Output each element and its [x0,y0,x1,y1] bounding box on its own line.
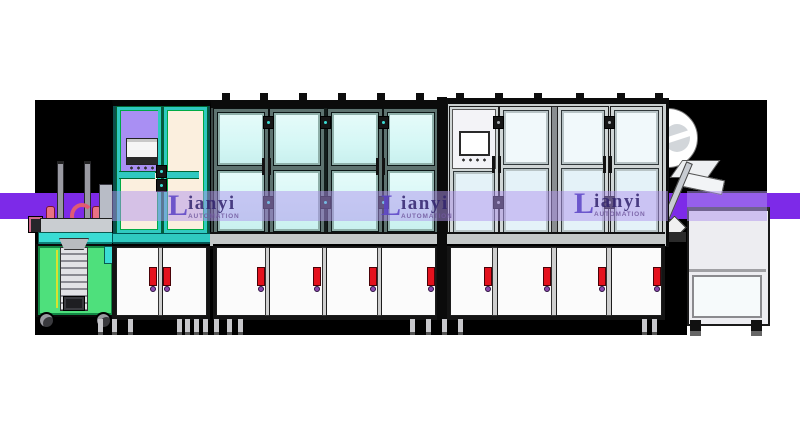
glass-window-upper [217,112,265,166]
logo-brand-text: ianyi [401,195,452,212]
hmi-screen [459,131,490,156]
elevator-motor [63,296,85,311]
door-handle-bar [498,156,501,173]
handle-screw [485,286,491,292]
logo-subtitle-text: AUTOMATION [401,213,452,220]
red-handle [484,267,492,286]
handle-screw [164,286,170,292]
side-cabinet-divider [689,269,766,272]
handle-screw [654,286,660,292]
handle-screw [428,286,434,292]
door-handle-bar [492,156,495,173]
red-handle [257,267,265,286]
red-handle [653,267,661,286]
leveling-foot [238,319,243,335]
door-handle-bar [609,156,612,173]
leveling-foot [458,319,463,335]
leveling-foot [410,319,415,335]
red-handle [163,267,171,286]
leveling-foot [128,319,133,335]
dispenser-bottom-rail [112,233,212,243]
dispenser-rail-left [119,171,155,179]
white-window-upper [561,110,605,165]
logo-subtitle-text: AUTOMATION [594,211,645,218]
red-handle [313,267,321,286]
side-cabinet-inset-panel [692,275,762,318]
red-handle [149,267,157,286]
leveling-foot [442,319,447,335]
door-handle-bar [382,158,385,175]
leveling-foot [214,319,219,335]
handle-screw [258,286,264,292]
leveling-foot [642,319,647,335]
caster-left [38,312,55,329]
red-handle [598,267,606,286]
red-handle [369,267,377,286]
glass-window-upper [331,112,379,166]
control-indicator-dots [460,158,488,162]
leveling-foot [112,319,117,335]
elevator-yellow-rail [56,250,58,308]
side-cabinet-foot-right [751,320,762,336]
leveling-foot [426,319,431,335]
glass-window-upper [273,112,321,166]
logo-text-column: ianyi AUTOMATION [188,195,239,220]
logo-brand-text: ianyi [594,193,645,210]
logo-brand-text: ianyi [188,195,239,212]
lianyi-logo: L ianyi AUTOMATION [381,194,452,220]
door-handle-bar [603,156,606,173]
door-handle-bar [262,158,265,175]
handle-screw [150,286,156,292]
leveling-foot [185,319,190,335]
logo-initial: L [574,192,594,215]
door-handle-bar [268,158,271,175]
side-cabinet-foot-left [690,320,701,336]
white-window-upper [503,110,549,165]
logo-subtitle-text: AUTOMATION [188,213,239,220]
lianyi-logo: L ianyi AUTOMATION [574,192,645,218]
logo-initial: L [168,194,188,217]
door-hinge [263,116,274,129]
dispenser-hinge-upper [156,165,167,178]
white-window-upper [614,110,659,165]
handle-screw [599,286,605,292]
dispenser-rail-right [166,171,199,179]
handle-screw [544,286,550,292]
handle-screw [314,286,320,292]
leveling-foot [227,319,232,335]
lianyi-logo: L ianyi AUTOMATION [168,194,239,220]
red-handle [543,267,551,286]
door-hinge [604,116,615,129]
leveling-foot [98,319,103,335]
door-hinge [378,116,389,129]
glass-window-upper [387,112,435,166]
logo-text-column: ianyi AUTOMATION [401,195,452,220]
leveling-foot [652,319,657,335]
door-hinge [320,116,331,129]
watermark-band [687,191,767,221]
leveling-foot [177,319,182,335]
door-hinge [493,116,504,129]
handle-screw [370,286,376,292]
logo-text-column: ianyi AUTOMATION [594,193,645,218]
red-handle [427,267,435,286]
logo-initial: L [381,194,401,217]
leveling-foot [203,319,208,335]
door-handle-bar [376,158,379,175]
production-line-drawing: L ianyi AUTOMATION L ianyi AUTOMATION L … [0,0,800,438]
printer-unit [126,138,158,165]
leveling-foot [194,319,199,335]
printer-indicator-dots [128,166,156,170]
